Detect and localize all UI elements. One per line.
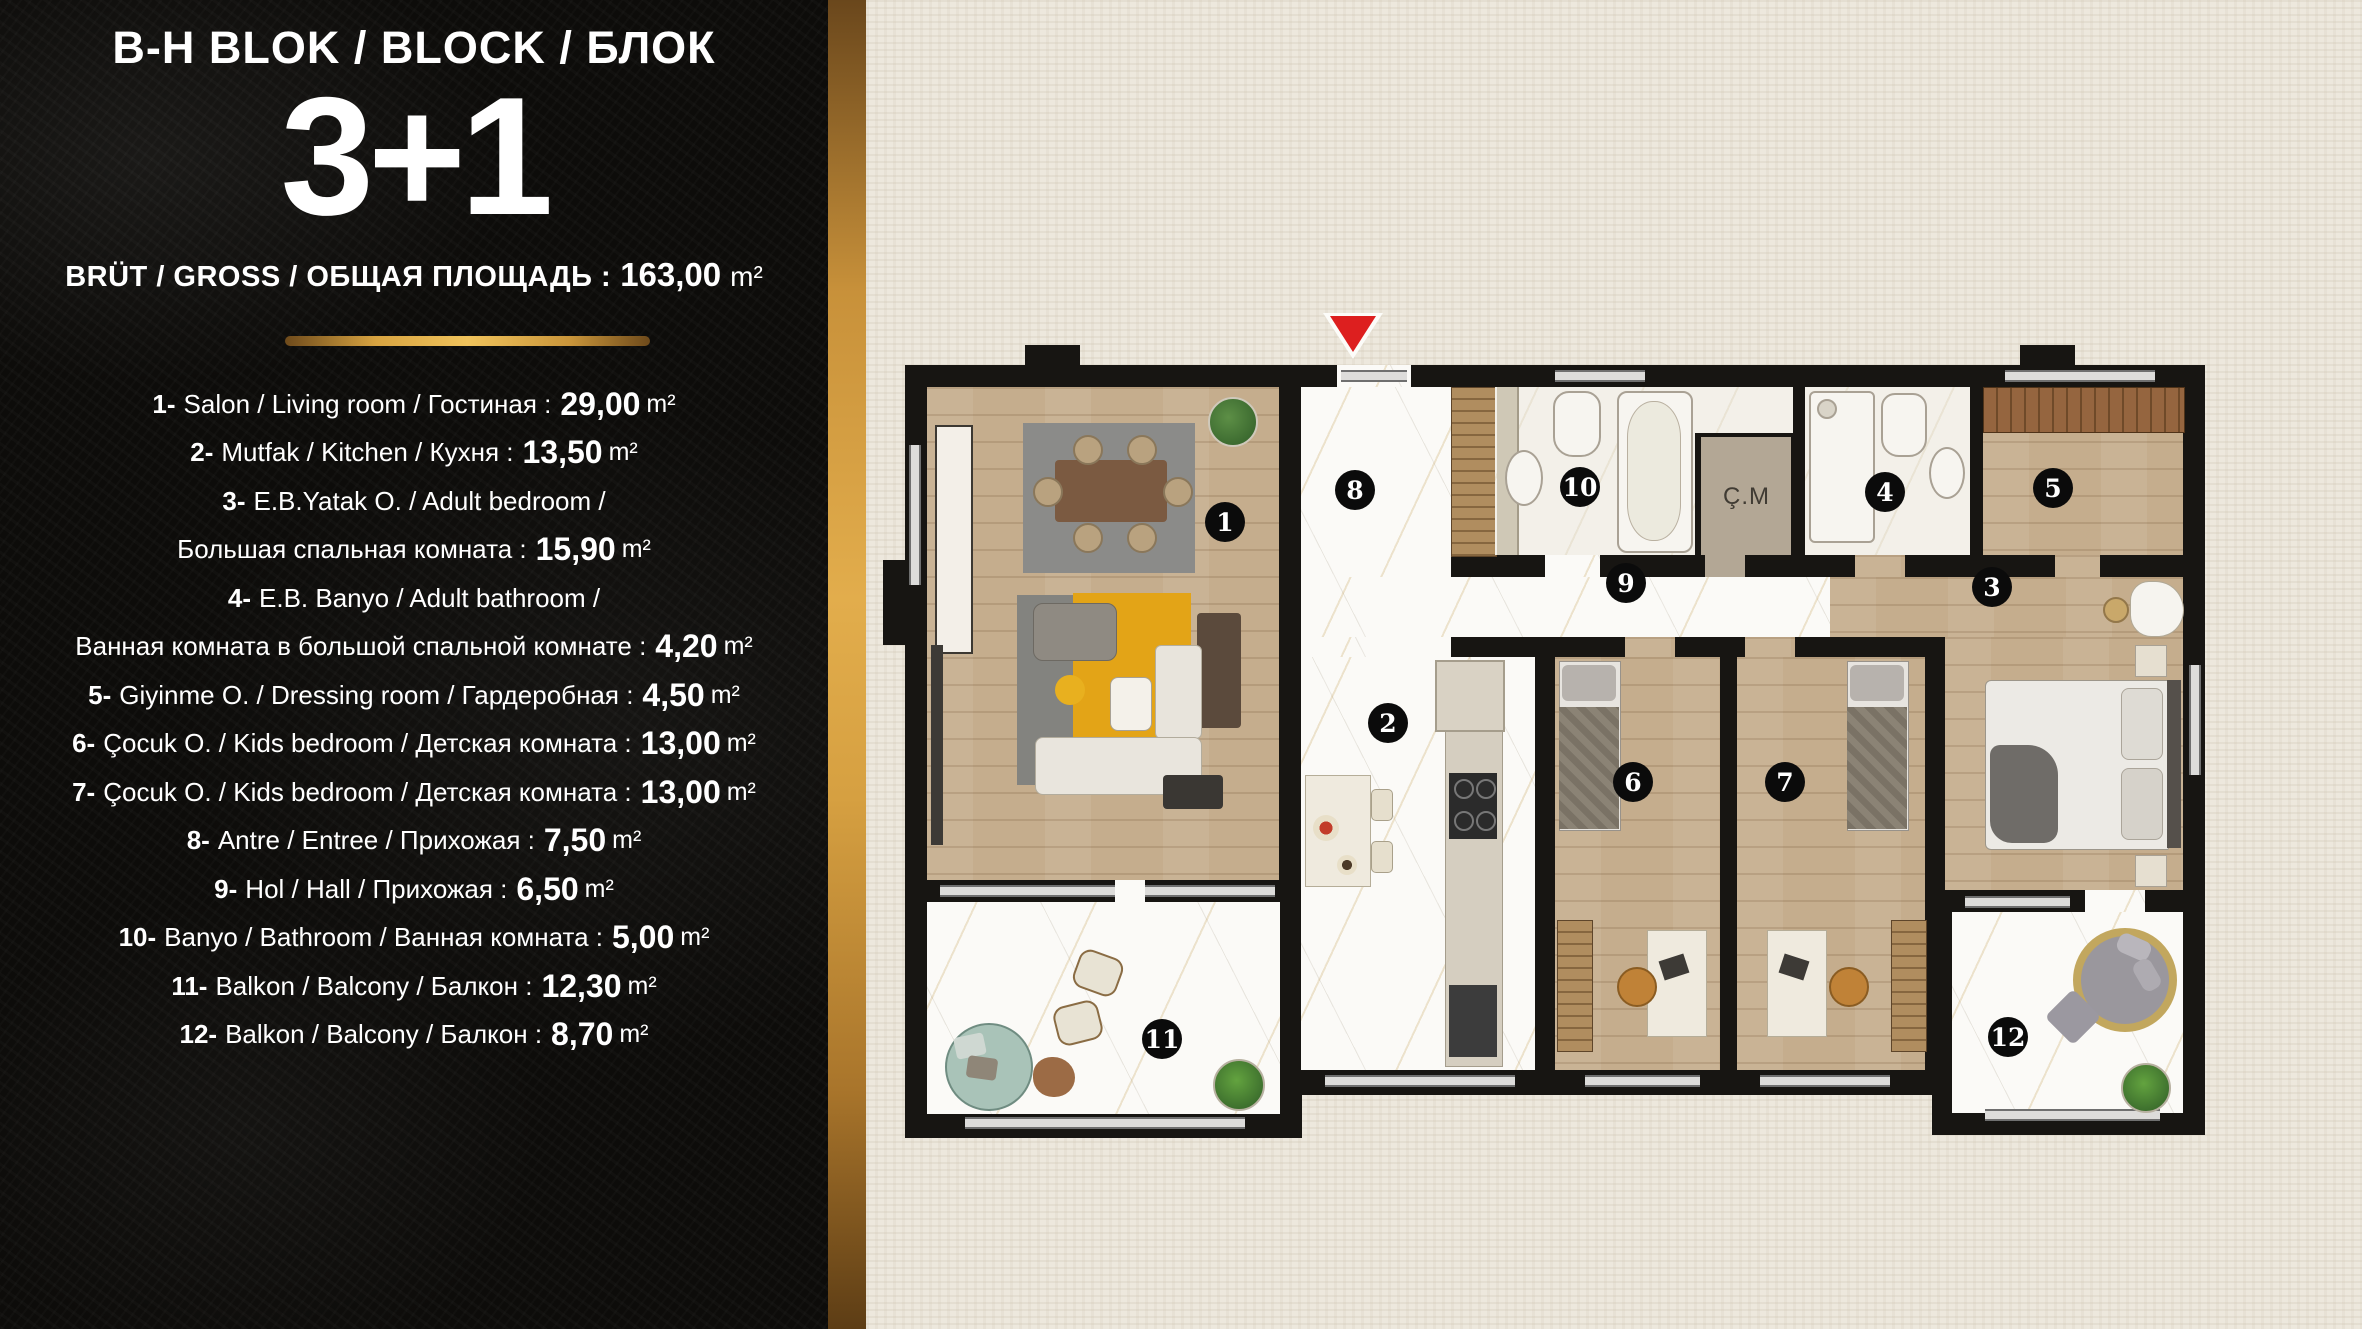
window	[965, 1117, 1245, 1129]
dining-chair	[1127, 435, 1157, 465]
room-area-unit: m²	[727, 778, 756, 807]
room-number: 10-	[119, 922, 157, 953]
room-number: 4-	[228, 583, 251, 614]
armchair	[1033, 603, 1117, 661]
bed-throw-blanket	[1990, 745, 2058, 843]
room-number: 1-	[152, 389, 175, 420]
info-panel: B-H BLOK / BLOCK / БЛОК 3+1 BRÜT / GROSS…	[0, 0, 828, 1329]
lounge-chair	[1197, 613, 1241, 728]
apartment-type: 3+1	[0, 60, 828, 253]
room-marker-8: 8	[1335, 470, 1375, 510]
dining-table	[1055, 460, 1167, 522]
room-name: Balkon / Balcony / Балкон :	[225, 1019, 542, 1050]
window	[2005, 370, 2155, 382]
coffee-table	[1110, 677, 1152, 731]
room-number: 11-	[171, 971, 207, 1002]
wall-stub	[883, 560, 905, 645]
plant	[2121, 1063, 2171, 1113]
dining-chair	[1073, 435, 1103, 465]
pouf	[1055, 675, 1085, 705]
room-hall-9	[1301, 577, 1830, 637]
room-name: E.B. Banyo / Adult bathroom /	[259, 583, 600, 614]
room-number: 6-	[72, 728, 95, 759]
plate	[1313, 815, 1339, 841]
room-area-unit: m²	[727, 729, 756, 758]
gross-area-value: 163,00	[620, 256, 721, 294]
wardrobe	[1557, 920, 1593, 1052]
room-area-unit: m²	[619, 1020, 648, 1049]
room-name: Ванная комната в большой спальной комнат…	[75, 631, 646, 662]
room-area: 5,00	[612, 919, 674, 956]
laundry-closet-label: Ç.M	[1723, 483, 1770, 511]
balcony-12-door	[2085, 890, 2145, 912]
room-area: 13,00	[641, 725, 721, 762]
room-area-unit: m²	[711, 681, 740, 710]
bedroom-6-door	[1625, 637, 1675, 657]
room-name: Banyo / Bathroom / Ванная комната :	[164, 922, 603, 953]
window	[1760, 1075, 1890, 1087]
room-name: Hol / Hall / Прихожая :	[245, 874, 507, 905]
room-area-unit: m²	[724, 632, 753, 661]
window	[1325, 1075, 1515, 1087]
pillow	[1850, 665, 1904, 701]
floor-plan: Ç.M	[905, 345, 2205, 1140]
room-marker-6: 6	[1613, 762, 1653, 802]
room-area: 13,00	[641, 774, 721, 811]
oven	[1449, 985, 1497, 1057]
room-area-unit: m²	[609, 438, 638, 467]
wardrobe	[1891, 920, 1927, 1052]
room-name: Çocuk O. / Kids bedroom / Детская комнат…	[103, 728, 631, 759]
room-list-item: 3- E.B.Yatak O. / Adult bedroom /	[0, 477, 828, 526]
dining-chair	[1163, 477, 1193, 507]
kitchen-chair	[1371, 789, 1393, 821]
room-list-item-continuation: Ванная комната в большой спальной комнат…	[0, 623, 828, 672]
window	[1585, 1075, 1700, 1087]
room-list-item-continuation: Большая спальная комната : 15,90 m²	[0, 526, 828, 575]
gold-separator	[285, 336, 650, 346]
burner	[1454, 779, 1474, 799]
window	[1985, 1109, 2160, 1121]
window	[1555, 370, 1645, 382]
console-table	[935, 425, 973, 654]
bedroom-7-door	[1745, 637, 1795, 657]
desk-chair	[1617, 967, 1657, 1007]
desk-chair	[1829, 967, 1869, 1007]
room-list-item: 1- Salon / Living room / Гостиная : 29,0…	[0, 380, 828, 429]
room-marker-1: 1	[1205, 502, 1245, 542]
room-area: 13,50	[523, 434, 603, 471]
entrance-triangle-icon	[1330, 316, 1376, 352]
toilet	[1553, 391, 1601, 457]
cushion	[966, 1055, 999, 1081]
room-number: 7-	[72, 777, 95, 808]
room-name: Antre / Entree / Прихожая :	[218, 825, 535, 856]
pillow	[2121, 688, 2163, 760]
kitchen-opening	[1301, 637, 1451, 657]
room-area-unit: m²	[680, 923, 709, 952]
nightstand	[2135, 855, 2167, 887]
tv-unit	[931, 645, 943, 845]
room-list-item: 5- Giyinme O. / Dressing room / Гардероб…	[0, 671, 828, 720]
vanity-stool	[2103, 597, 2129, 623]
window	[1145, 885, 1275, 897]
gross-area-label: BRÜT / GROSS / ОБЩАЯ ПЛОЩАДЬ :	[65, 261, 611, 294]
room-number: 12-	[180, 1019, 218, 1050]
entrance-door-threshold	[1341, 370, 1407, 382]
room-name: Salon / Living room / Гостиная :	[184, 389, 552, 420]
room-list: 1- Salon / Living room / Гостиная : 29,0…	[0, 380, 828, 1059]
room-area: 4,50	[642, 677, 704, 714]
room-number: 8-	[187, 825, 210, 856]
burner	[1454, 811, 1474, 831]
laundry-closet-door	[1705, 555, 1745, 577]
room-list-item: 11- Balkon / Balcony / Балкон : 12,30 m²	[0, 962, 828, 1011]
bed-headboard	[2167, 680, 2181, 848]
room-marker-5: 5	[2033, 468, 2073, 508]
room-list-item: 6- Çocuk O. / Kids bedroom / Детская ком…	[0, 720, 828, 769]
room-marker-11: 11	[1142, 1019, 1182, 1059]
sink	[1929, 447, 1965, 499]
room-area: 4,20	[655, 628, 717, 665]
duvet	[1559, 707, 1619, 829]
room-marker-12: 12	[1988, 1017, 2028, 1057]
nightstand	[2135, 645, 2167, 677]
pillow	[2121, 768, 2163, 840]
plant	[1213, 1059, 1265, 1111]
sink	[1505, 450, 1543, 506]
room-name: Giyinme O. / Dressing room / Гардеробная…	[119, 680, 633, 711]
room-list-item: 2- Mutfak / Kitchen / Кухня : 13,50 m²	[0, 429, 828, 478]
side-table	[1033, 1057, 1075, 1097]
balcony-11-door	[1115, 880, 1145, 902]
fridge	[1435, 660, 1505, 732]
room-number: 2-	[190, 437, 213, 468]
room-number: 3-	[222, 486, 245, 517]
gross-area-line: BRÜT / GROSS / ОБЩАЯ ПЛОЩАДЬ : 163,00 m²	[0, 256, 828, 294]
room-number: 5-	[88, 680, 111, 711]
room-name: Çocuk O. / Kids bedroom / Детская комнат…	[103, 777, 631, 808]
brochure-page: B-H BLOK / BLOCK / БЛОК 3+1 BRÜT / GROSS…	[0, 0, 2362, 1329]
room-area: 15,90	[536, 531, 616, 568]
plant	[1208, 397, 1258, 447]
shower-drain	[1817, 399, 1837, 419]
dining-chair	[1033, 477, 1063, 507]
room-list-item: 12- Balkon / Balcony / Балкон : 8,70 m²	[0, 1011, 828, 1060]
gross-area-unit: m²	[730, 261, 763, 293]
bathroom-10-door	[1545, 555, 1600, 577]
wardrobe	[1983, 387, 2185, 433]
burner	[1476, 811, 1496, 831]
dining-chair	[1073, 523, 1103, 553]
duvet	[1847, 707, 1907, 829]
room-name: Balkon / Balcony / Балкон :	[215, 971, 532, 1002]
bathroom-4-door	[1855, 555, 1905, 577]
room-area: 8,70	[551, 1016, 613, 1053]
room-marker-9: 9	[1606, 563, 1646, 603]
pillow	[1562, 665, 1616, 701]
chaise	[1155, 645, 1202, 739]
toilet	[1881, 393, 1927, 457]
room-number: 9-	[214, 874, 237, 905]
vanity-table	[2130, 581, 2184, 637]
room-area-unit: m²	[646, 390, 675, 419]
plate	[1337, 855, 1357, 875]
entry-wardrobe	[1451, 387, 1497, 557]
room-list-item: 7- Çocuk O. / Kids bedroom / Детская ком…	[0, 768, 828, 817]
room-marker-4: 4	[1865, 472, 1905, 512]
room-list-item: 4- E.B. Banyo / Adult bathroom /	[0, 574, 828, 623]
wall-stub	[2020, 345, 2075, 369]
room-marker-10: 10	[1560, 467, 1600, 507]
dressing-5-door	[2055, 555, 2100, 577]
room-name: Mutfak / Kitchen / Кухня :	[221, 437, 513, 468]
window	[2189, 665, 2201, 775]
room-area-unit: m²	[628, 972, 657, 1001]
tv-bench	[1163, 775, 1223, 809]
bathtub-basin	[1627, 401, 1681, 541]
room-area: 6,50	[516, 871, 578, 908]
room-list-item: 8- Antre / Entree / Прихожая : 7,50 m²	[0, 817, 828, 866]
wall-stub	[1025, 345, 1080, 369]
room-marker-7: 7	[1765, 762, 1805, 802]
dining-chair	[1127, 523, 1157, 553]
kitchen-chair	[1371, 841, 1393, 873]
window	[940, 885, 1115, 897]
room-name: E.B.Yatak O. / Adult bedroom /	[253, 486, 605, 517]
room-area: 12,30	[541, 968, 621, 1005]
desk	[1767, 930, 1827, 1037]
room-area: 29,00	[560, 386, 640, 423]
room-list-item: 10- Banyo / Bathroom / Ванная комната : …	[0, 914, 828, 963]
room-area: 7,50	[544, 822, 606, 859]
window	[1965, 896, 2070, 908]
room-area-unit: m²	[612, 826, 641, 855]
room-area-unit: m²	[622, 535, 651, 564]
gold-divider-band	[828, 0, 866, 1329]
room-marker-3: 3	[1972, 567, 2012, 607]
room-name: Большая спальная комната :	[177, 534, 526, 565]
room-marker-2: 2	[1368, 703, 1408, 743]
burner	[1476, 779, 1496, 799]
window	[909, 445, 921, 585]
room-area-unit: m²	[585, 875, 614, 904]
room-bathroom-10-alcove	[1695, 387, 1793, 433]
room-list-item: 9- Hol / Hall / Прихожая : 6,50 m²	[0, 865, 828, 914]
